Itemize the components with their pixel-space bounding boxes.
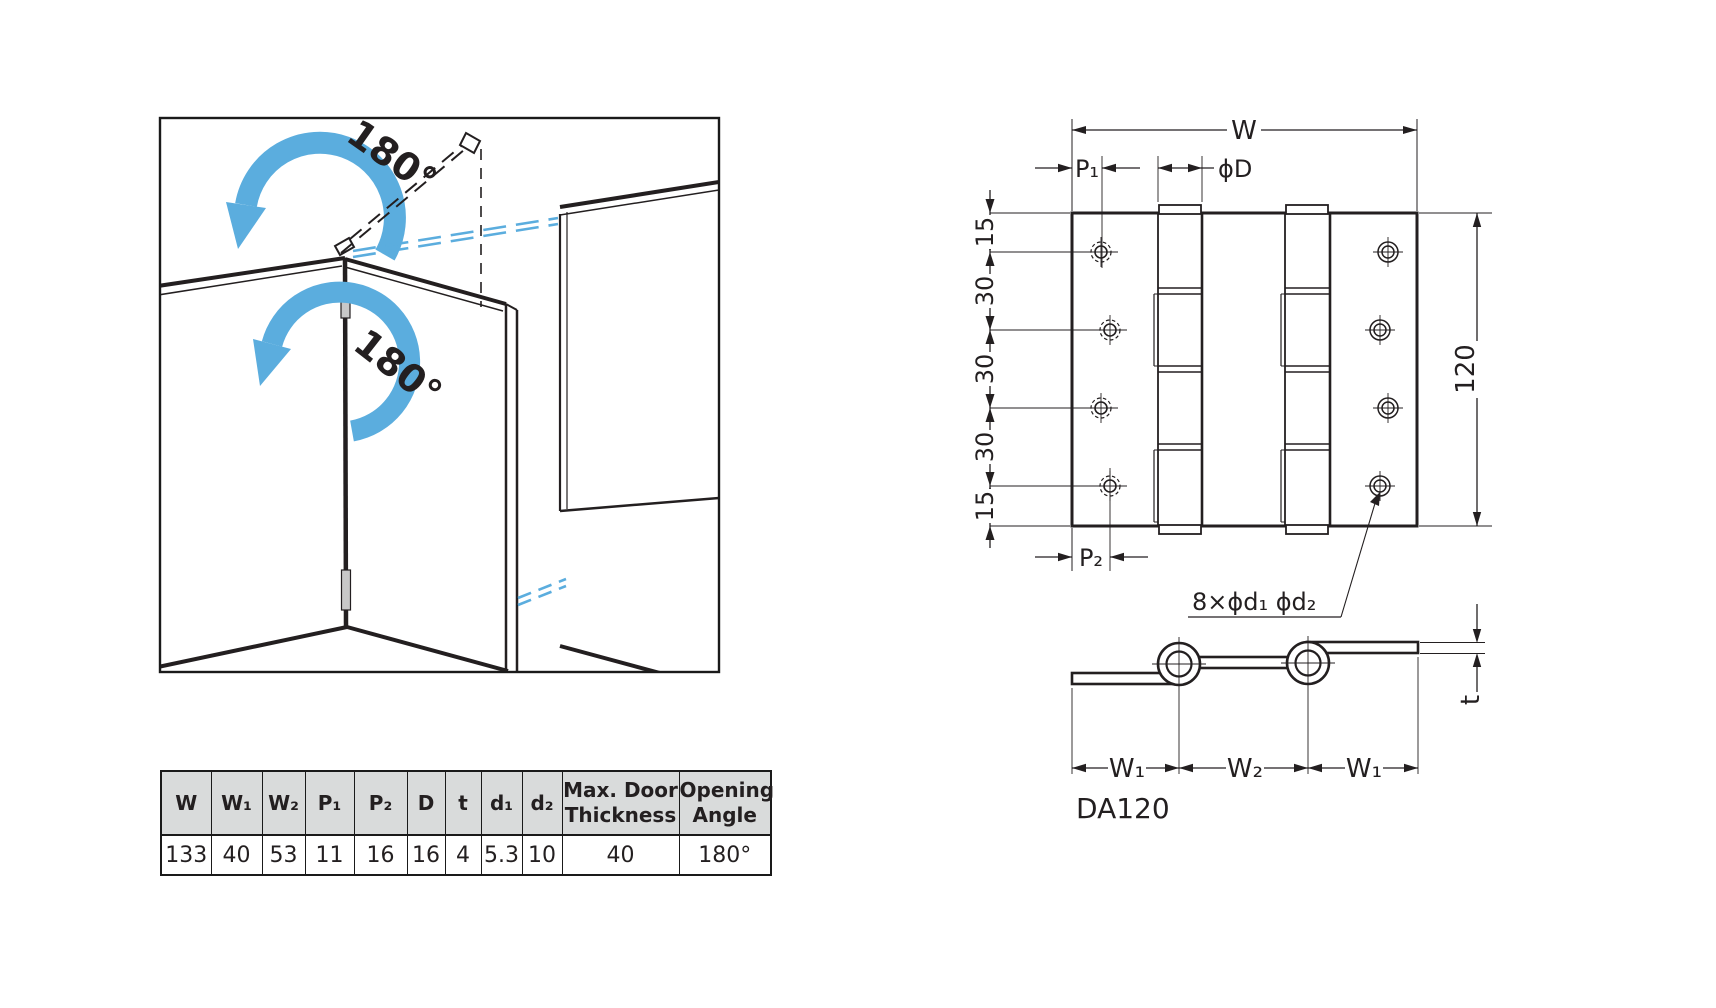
door-swing-illustration: 180° 180° xyxy=(158,111,719,689)
spec-col-header-max-door-thickness: Max. Door Thickness xyxy=(562,771,679,835)
dim-phi-d-label: ϕD xyxy=(1218,155,1252,183)
dim-w2-label: W₂ xyxy=(1227,754,1263,784)
spec-col-header-d1: d₁ xyxy=(481,771,522,835)
dim-chain-left: 15 30 30 30 15 xyxy=(971,190,999,548)
dim-w-label: W xyxy=(1231,116,1257,146)
holes-callout-label: 8×ϕd₁ ϕd₂ xyxy=(1192,588,1316,616)
spec-value-t: 4 xyxy=(445,835,481,875)
spec-col-header-opening-angle: Opening Angle xyxy=(679,771,771,835)
spec-value-p1: 11 xyxy=(305,835,354,875)
model-number-label: DA120 xyxy=(1076,792,1170,825)
hinge-knuckle xyxy=(342,570,351,610)
dim-p1-label: P₁ xyxy=(1075,155,1099,183)
folding-door-edge-face xyxy=(506,303,517,671)
dim-120: 120 xyxy=(1419,213,1492,526)
spec-col-header-p2: P₂ xyxy=(354,771,407,835)
hinge-plate-outline xyxy=(1072,213,1417,526)
left-wall-panel xyxy=(158,258,347,666)
hinge-section-view: W₁ W₂ W₁ t DA120 xyxy=(1072,604,1486,825)
dim-t: t xyxy=(1420,604,1486,705)
spec-value-d: 16 xyxy=(407,835,445,875)
dim-w1-left-label: W₁ xyxy=(1109,754,1145,784)
hinge-plan-view: W P₁ ϕD xyxy=(971,116,1492,617)
dim-120-label: 120 xyxy=(1451,344,1481,394)
dim-15-bottom-label: 15 xyxy=(971,491,999,522)
spec-value-d1: 5.3 xyxy=(481,835,522,875)
dim-30-label: 30 xyxy=(971,432,999,463)
dim-p2-label: P₂ xyxy=(1079,544,1103,572)
spec-col-header-d: D xyxy=(407,771,445,835)
spec-table: W W₁ W₂ P₁ P₂ D t d₁ d₂ Max. Door Thickn… xyxy=(160,770,772,876)
dim-15-top-label: 15 xyxy=(971,217,999,248)
catalog-page: { "illustration": { "top_angle_label": "… xyxy=(0,0,1716,1008)
dim-phi-d: ϕD xyxy=(1158,155,1252,202)
spec-value-w: 133 xyxy=(161,835,211,875)
spec-value-w2: 53 xyxy=(262,835,305,875)
spec-col-header-w1: W₁ xyxy=(211,771,262,835)
dim-30-label: 30 xyxy=(971,276,999,307)
folding-door-panel xyxy=(345,258,506,671)
swing-arrowhead xyxy=(226,202,266,249)
spec-table-value-row: 133 40 53 11 16 16 4 5.3 10 40 180° xyxy=(161,835,771,875)
dim-t-label: t xyxy=(1456,695,1486,705)
spec-table-header-row: W W₁ W₂ P₁ P₂ D t d₁ d₂ Max. Door Thickn… xyxy=(161,771,771,835)
spec-value-d2: 10 xyxy=(522,835,562,875)
dim-w1-right-label: W₁ xyxy=(1346,754,1382,784)
right-door-panel xyxy=(560,188,719,511)
spec-value-p2: 16 xyxy=(354,835,407,875)
spec-col-header-t: t xyxy=(445,771,481,835)
spec-col-header-w: W xyxy=(161,771,211,835)
dim-30-label: 30 xyxy=(971,354,999,385)
spec-value-opening-angle: 180° xyxy=(679,835,771,875)
spec-col-header-d2: d₂ xyxy=(522,771,562,835)
spec-value-w1: 40 xyxy=(211,835,262,875)
spec-value-max-door-thickness: 40 xyxy=(562,835,679,875)
spec-col-header-p1: P₁ xyxy=(305,771,354,835)
spec-col-header-w2: W₂ xyxy=(262,771,305,835)
